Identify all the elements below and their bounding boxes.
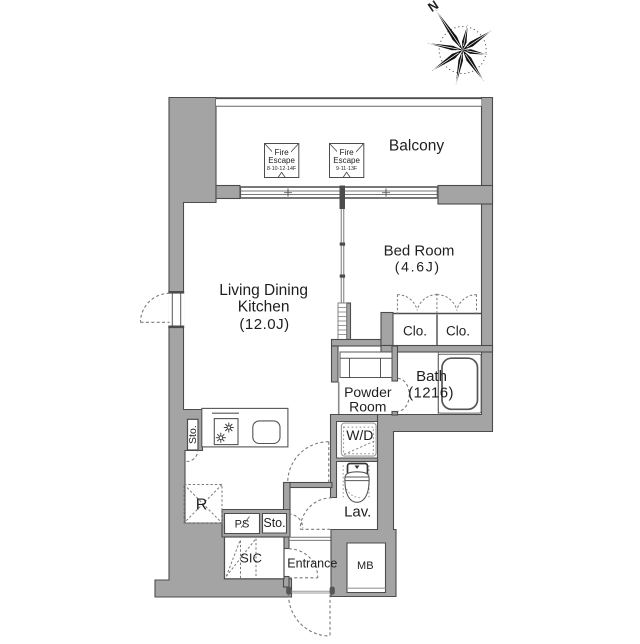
- svg-text:Escape: Escape: [268, 156, 295, 165]
- svg-text:Balcony: Balcony: [389, 137, 444, 154]
- svg-text:Bath: Bath: [416, 368, 447, 385]
- svg-text:W/D: W/D: [346, 427, 373, 443]
- svg-text:(4.6J): (4.6J): [395, 258, 441, 274]
- svg-text:Lav.: Lav.: [344, 503, 371, 520]
- svg-text:Clo.: Clo.: [403, 323, 427, 338]
- svg-text:(1216): (1216): [408, 385, 454, 402]
- svg-text:MB: MB: [357, 560, 374, 572]
- svg-text:9·11·13F: 9·11·13F: [336, 166, 358, 172]
- svg-text:8·10·12·14F: 8·10·12·14F: [267, 166, 297, 172]
- svg-text:R: R: [196, 497, 208, 514]
- svg-text:Kitchen: Kitchen: [238, 299, 290, 316]
- svg-text:Escape: Escape: [333, 156, 360, 165]
- svg-text:Clo.: Clo.: [446, 323, 470, 338]
- svg-text:Entrance: Entrance: [287, 557, 337, 571]
- svg-text:SIC: SIC: [240, 550, 262, 565]
- svg-text:Living Dining: Living Dining: [219, 282, 308, 299]
- svg-text:Bed Room: Bed Room: [384, 242, 455, 259]
- svg-text:Sto.: Sto.: [263, 516, 285, 530]
- svg-text:Room: Room: [349, 398, 386, 414]
- svg-text:Sto.: Sto.: [187, 425, 199, 444]
- svg-text:(12.0J): (12.0J): [239, 316, 289, 333]
